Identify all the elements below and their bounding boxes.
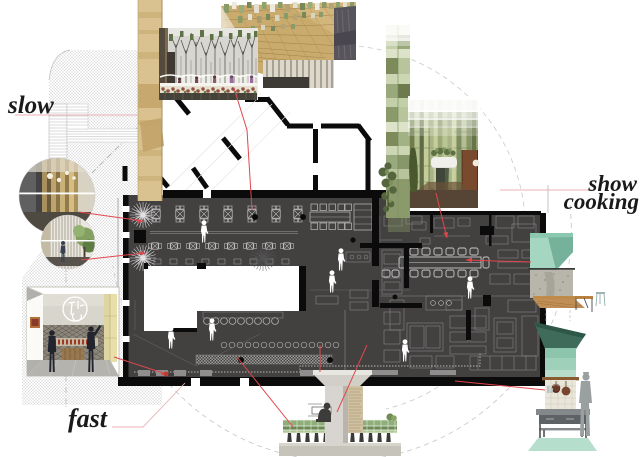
svg-text:cooking: cooking [564,189,639,214]
svg-text:fast: fast [68,404,108,433]
svg-text:slow: slow [7,92,54,119]
